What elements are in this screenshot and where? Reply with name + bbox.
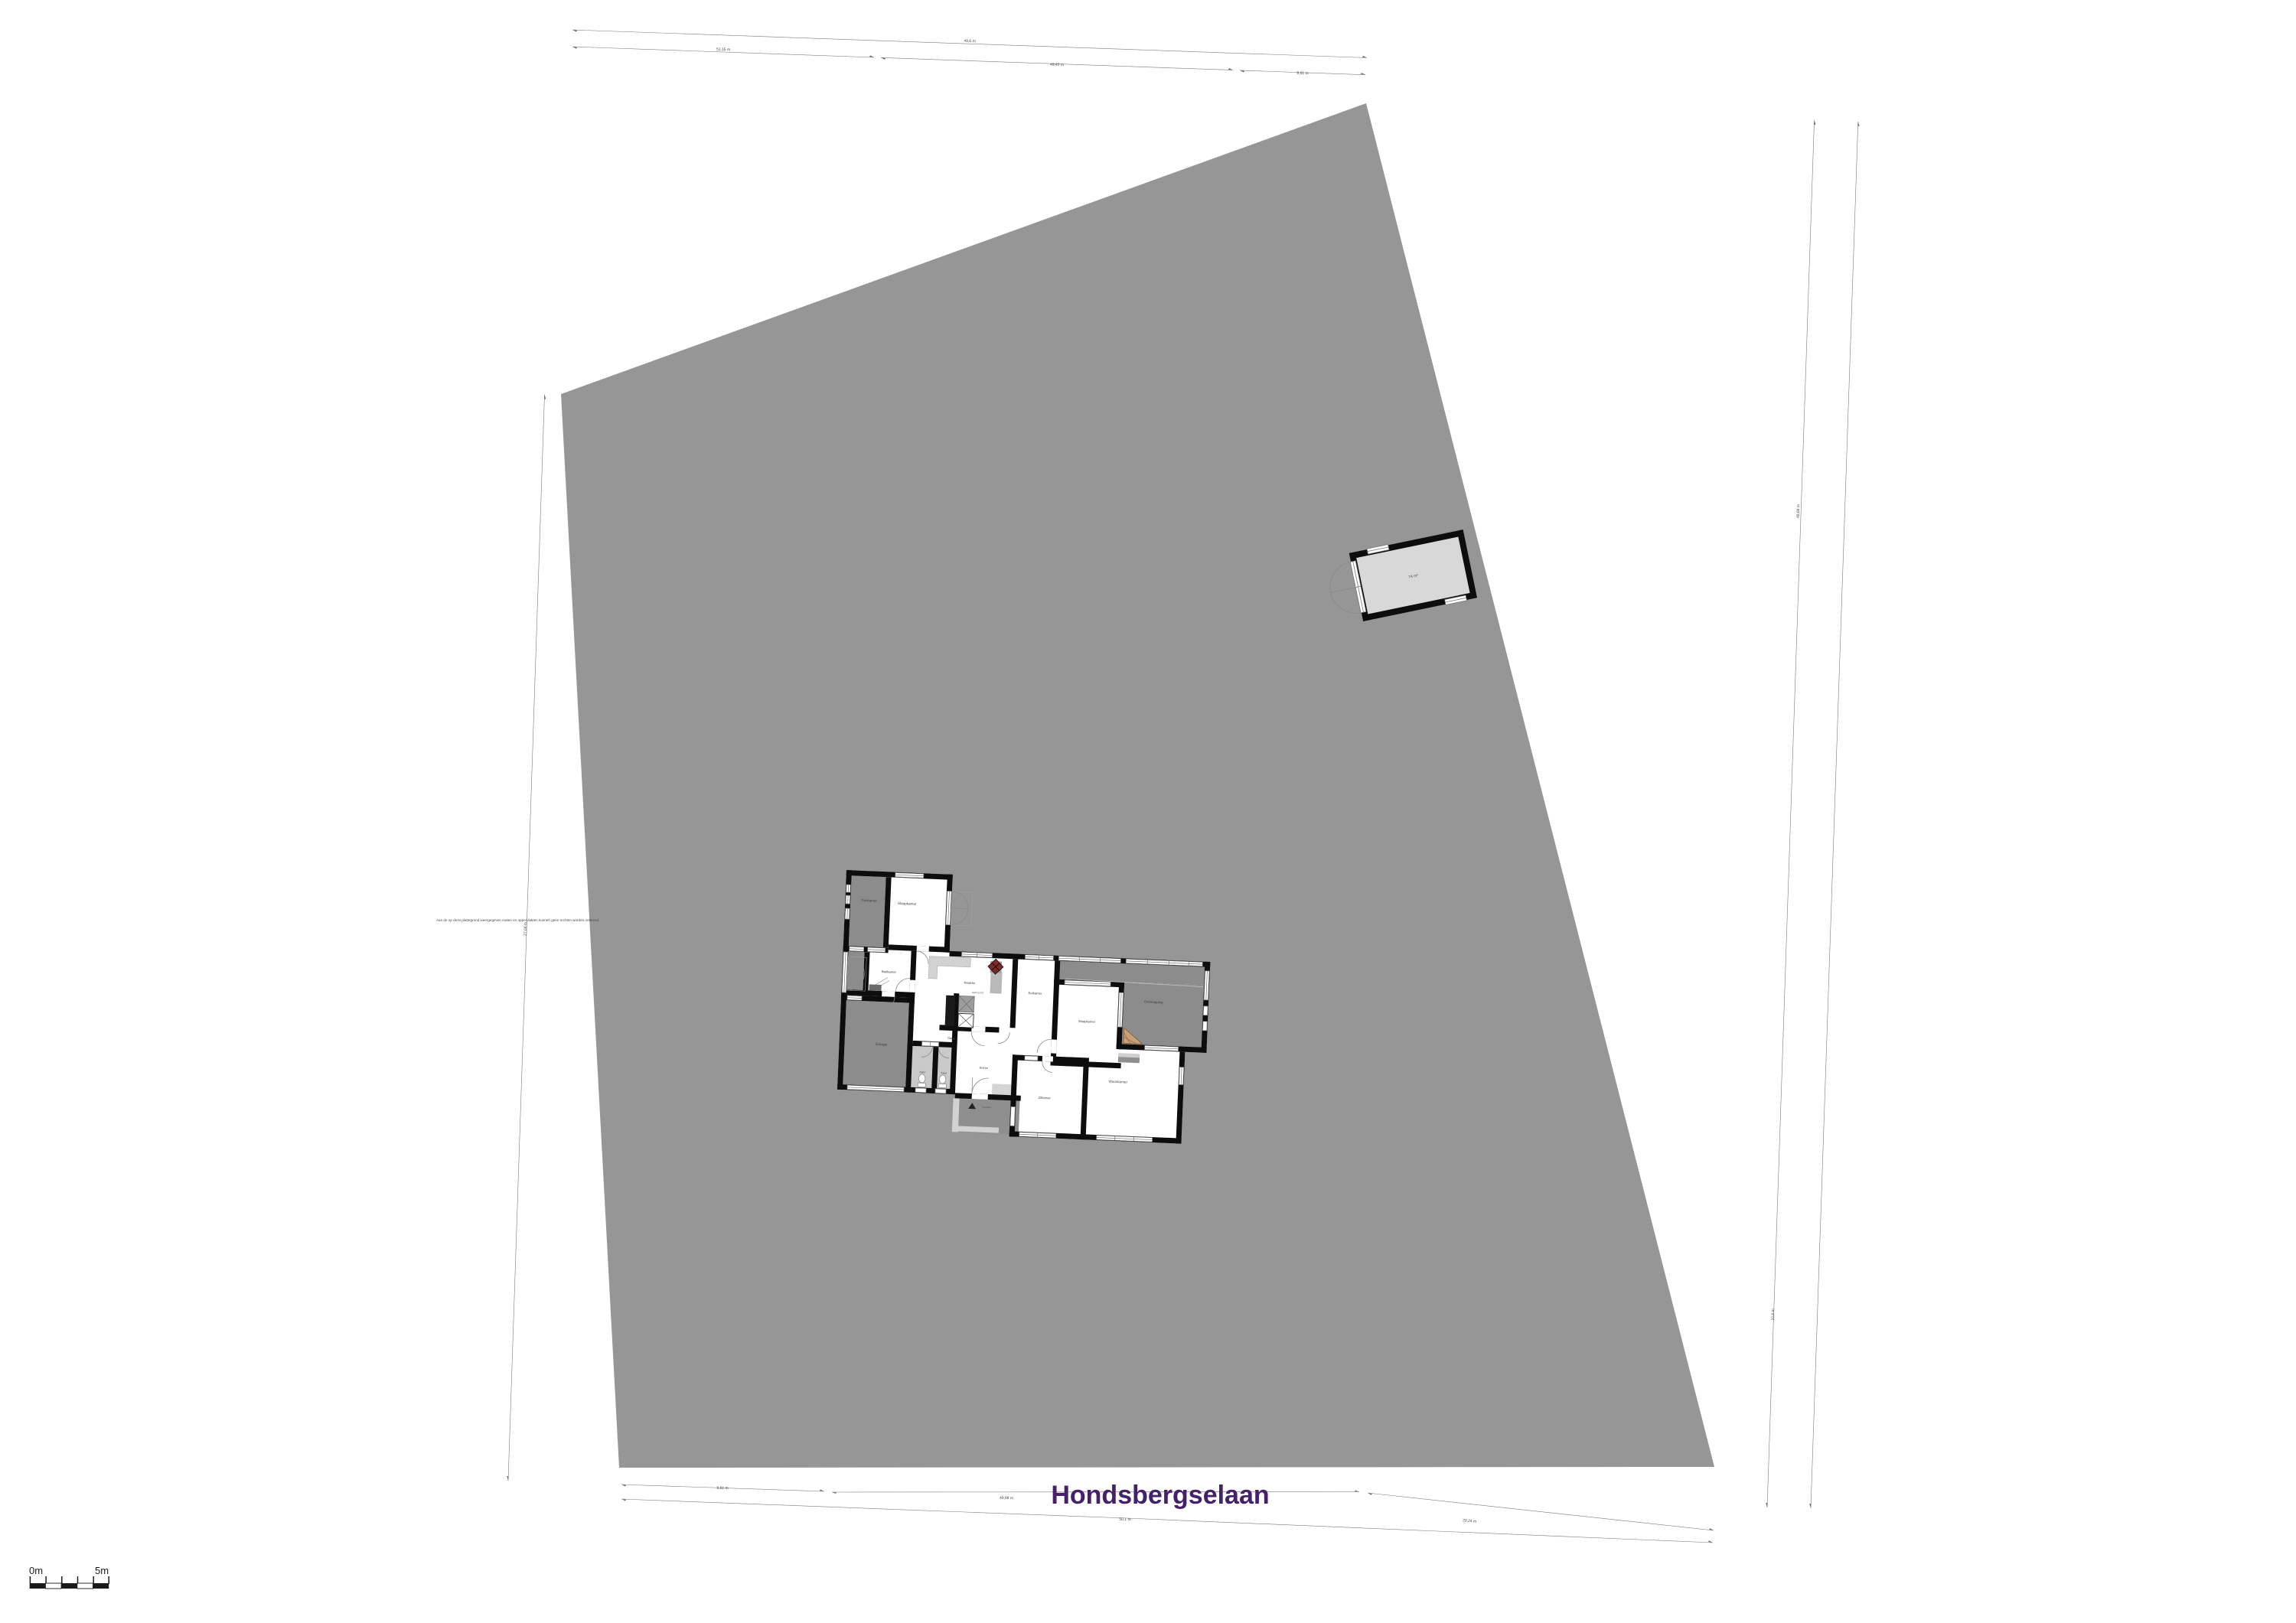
svg-text:49,42 m: 49,42 m	[1050, 63, 1064, 68]
svg-text:Entree: Entree	[980, 1067, 988, 1070]
svg-text:Badkamer: Badkamer	[882, 970, 897, 974]
svg-text:Eetkamer: Eetkamer	[1028, 991, 1042, 996]
svg-text:Woonkamer: Woonkamer	[1108, 1080, 1127, 1084]
svg-text:Slaapkamer: Slaapkamer	[898, 901, 917, 906]
svg-text:Overkapping: Overkapping	[1144, 999, 1164, 1004]
svg-text:Aan de op deze plattegrond wee: Aan de op deze plattegrond weergegeven m…	[436, 918, 598, 922]
svg-text:10,8 m: 10,8 m	[1771, 1309, 1776, 1320]
svg-text:aanrecht: aanrecht	[972, 991, 984, 995]
svg-text:9,61 m: 9,61 m	[1296, 71, 1308, 77]
svg-text:49,99 m: 49,99 m	[1000, 1496, 1013, 1501]
svg-text:51,15 m: 51,15 m	[716, 47, 730, 53]
svg-text:27,04 m: 27,04 m	[523, 922, 529, 936]
svg-text:Toilet: Toilet	[941, 1071, 947, 1074]
svg-text:5m: 5m	[95, 1565, 109, 1576]
svg-text:Hondsbergselaan: Hondsbergselaan	[1051, 1481, 1269, 1510]
svg-text:Zitkamer: Zitkamer	[1039, 1096, 1052, 1100]
svg-text:Keuken: Keuken	[964, 981, 976, 986]
svg-text:49,6 m: 49,6 m	[964, 39, 975, 44]
svg-text:Slaapkamer: Slaapkamer	[1078, 1019, 1096, 1024]
svg-text:48,68 m: 48,68 m	[1796, 504, 1802, 518]
svg-text:Garage: Garage	[876, 1042, 888, 1047]
svg-text:9,61 m: 9,61 m	[716, 1486, 728, 1491]
svg-text:Toilet: Toilet	[919, 1071, 925, 1074]
svg-text:0m: 0m	[29, 1565, 43, 1576]
svg-text:Gang: Gang	[947, 1036, 955, 1040]
svg-text:voordeur: voordeur	[982, 1106, 993, 1110]
svg-text:50,1 m: 50,1 m	[1119, 1517, 1130, 1523]
svg-text:Tuinkamer: Tuinkamer	[861, 898, 877, 903]
